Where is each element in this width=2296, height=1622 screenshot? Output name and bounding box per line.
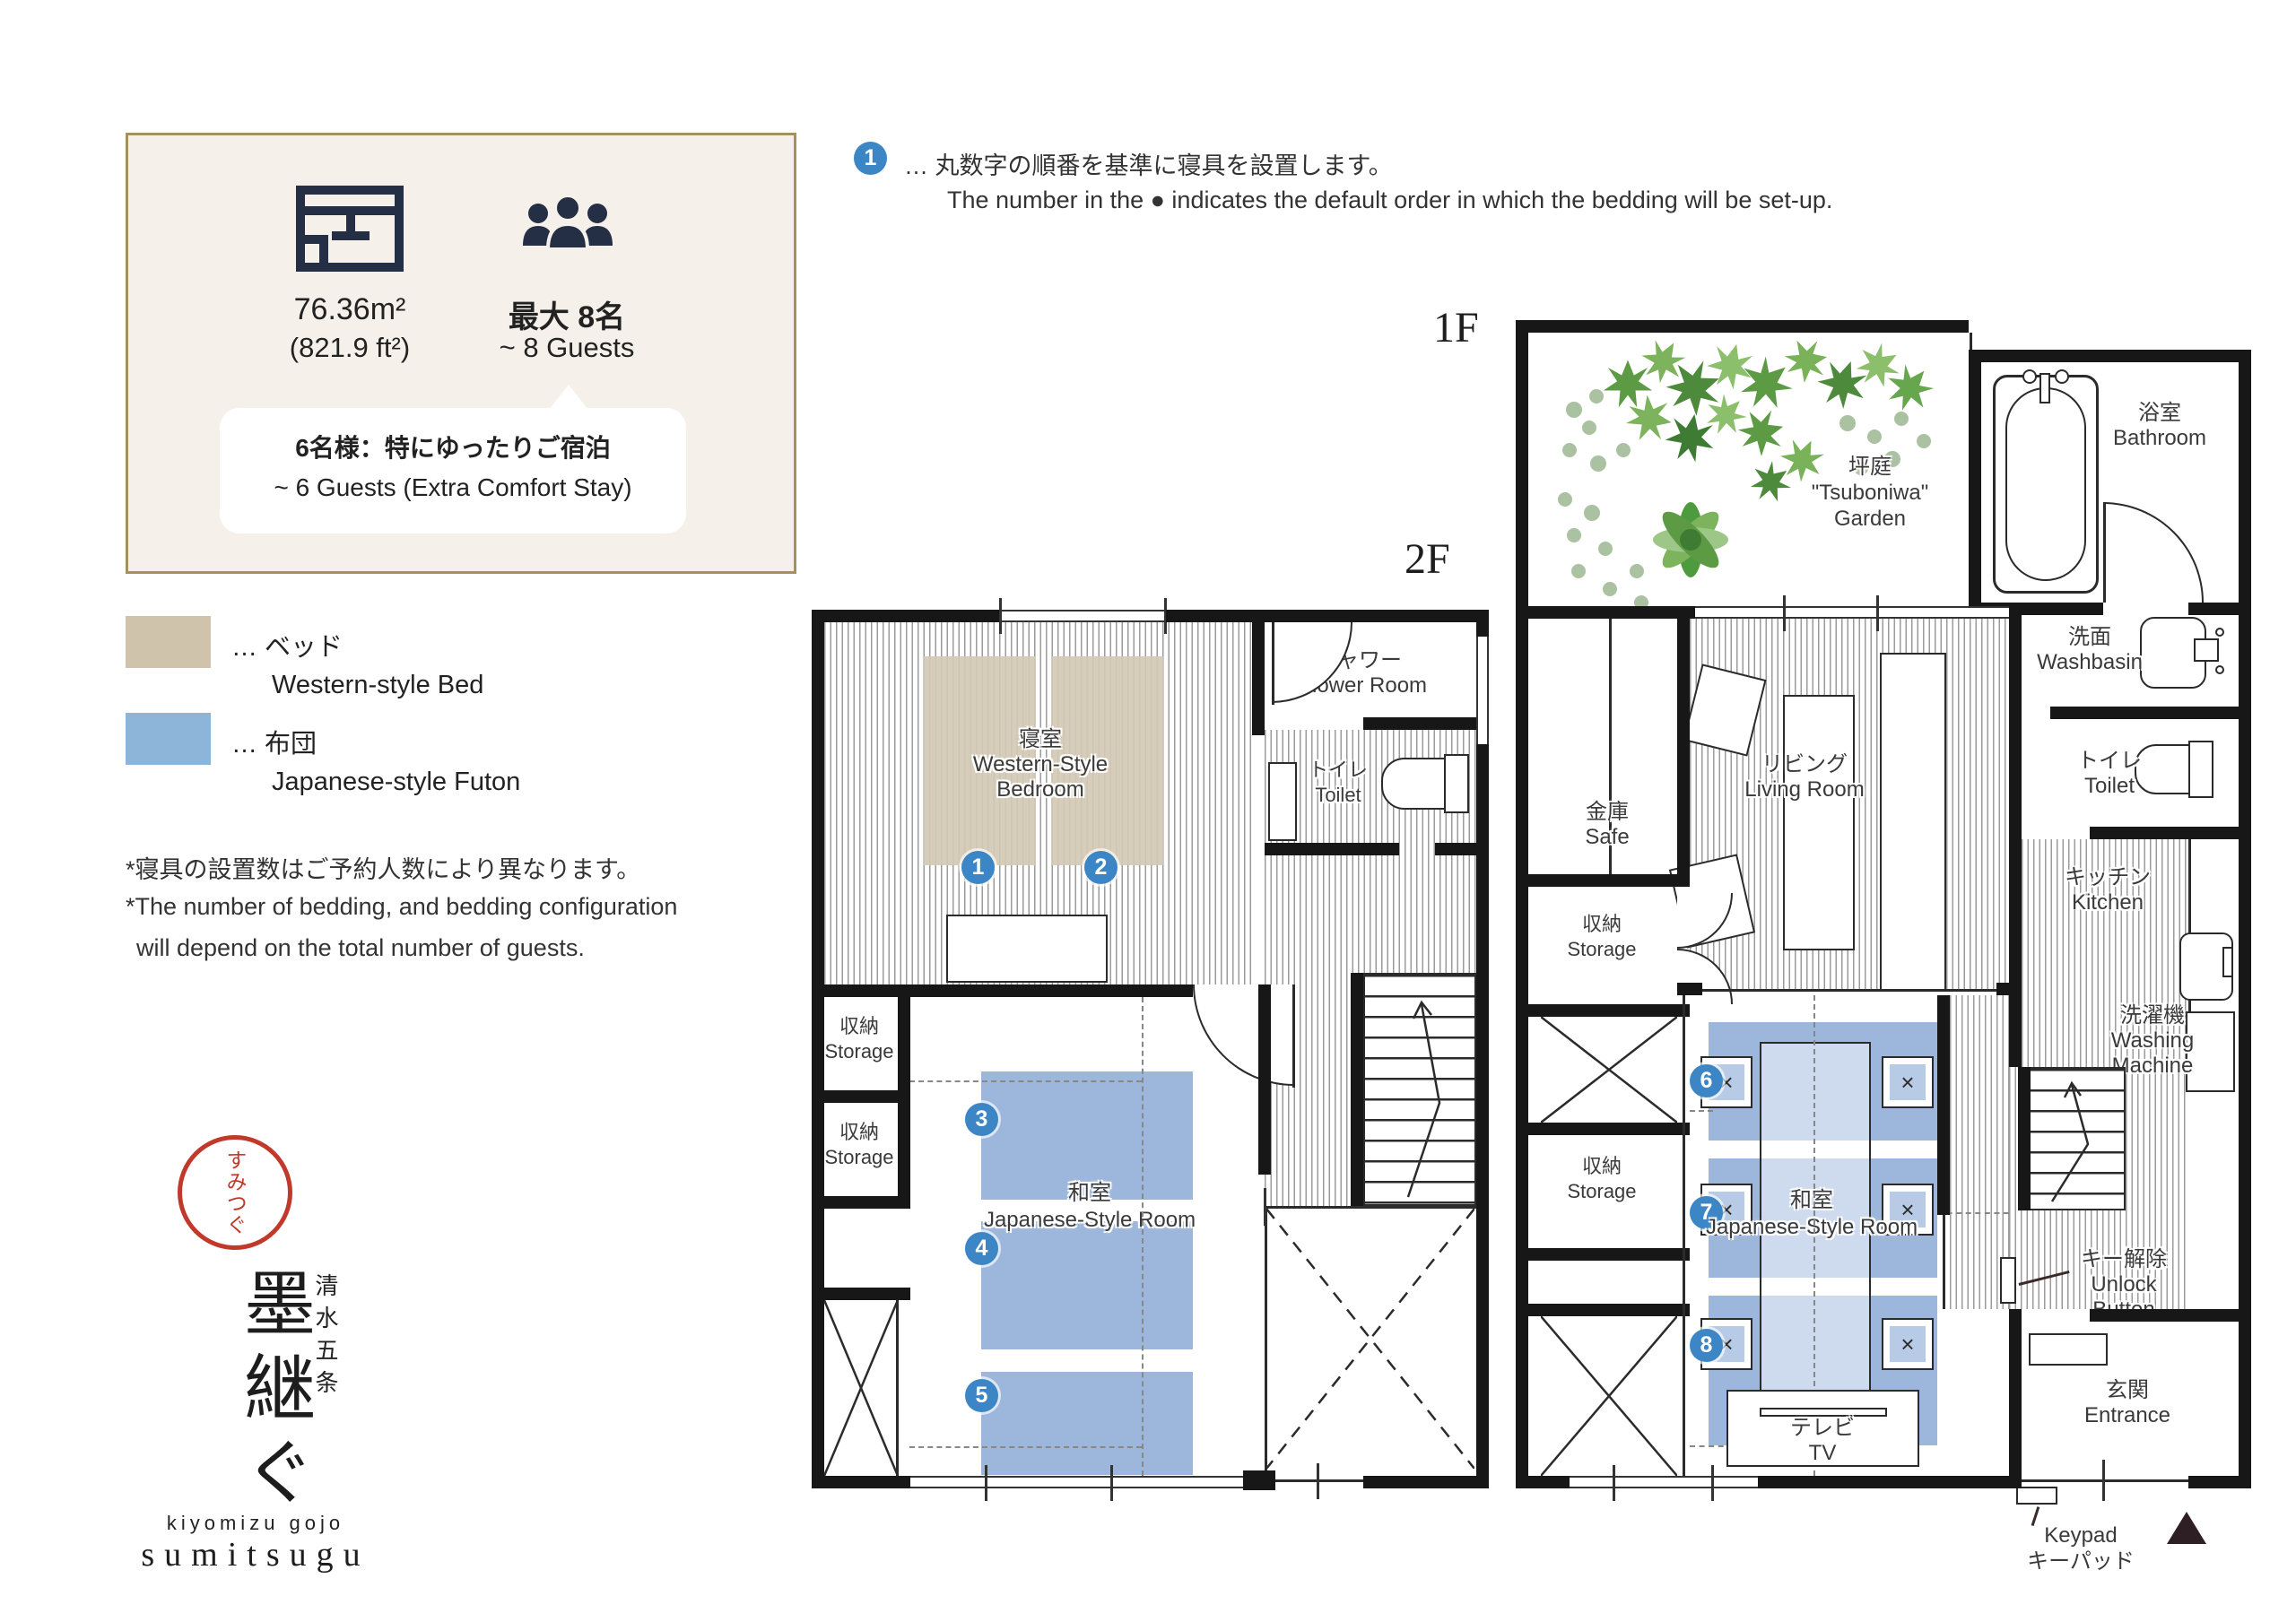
garden-label-jp: 坪庭 <box>1762 455 1978 479</box>
toilet-2f-bowl <box>1381 758 1448 810</box>
marker-8-number: 8 <box>1700 1332 1713 1358</box>
wall <box>1528 606 1695 619</box>
window <box>1695 606 2009 619</box>
tick <box>1613 1465 1615 1501</box>
tick <box>985 1465 987 1501</box>
marker-5-number: 5 <box>976 1383 988 1409</box>
garden-label-en1: "Tsuboniwa" <box>1762 481 1978 505</box>
laundry-label-en1: Washing <box>2081 1029 2224 1053</box>
wall <box>1758 1476 2009 1488</box>
toilet-2f-label-en: Toilet <box>1284 784 1392 807</box>
bedding-marker-4: 4 <box>965 1232 998 1265</box>
marker-2-number: 2 <box>1095 854 1108 880</box>
storage-1f-b-en: Storage <box>1530 1180 1674 1203</box>
wall <box>812 610 824 1488</box>
living-label-jp: リビング <box>1706 753 1903 776</box>
bedroom-label-en2: Bedroom <box>933 778 1148 802</box>
marker-3-number: 3 <box>976 1106 988 1132</box>
wall <box>898 1103 910 1196</box>
wall <box>2009 1309 2022 1488</box>
kitchen-label-en: Kitchen <box>2027 891 2188 915</box>
setup-note-badge-number: 1 <box>865 145 877 171</box>
bathroom-label-en: Bathroom <box>2079 427 2240 450</box>
bedding-marker-5: 5 <box>965 1379 998 1412</box>
legend-bed-en: Western-style Bed <box>272 671 483 700</box>
laundry-label-jp: 洗濯機 <box>2081 1004 2224 1028</box>
wall-thin <box>1690 989 2009 992</box>
wall <box>1476 610 1489 637</box>
bath-handle <box>2039 373 2050 403</box>
washitsu-2f-label-jp: 和室 <box>964 1182 1215 1205</box>
floor-chair: × <box>1882 1056 1934 1108</box>
area-alt-value: (821.9 ft²) <box>224 332 475 364</box>
wall <box>898 997 910 1103</box>
bathroom-door-arc <box>2103 502 2204 603</box>
wall <box>1528 1304 1690 1316</box>
wall <box>1677 983 1702 995</box>
storage-1f-b-jp: 収納 <box>1530 1155 1674 1178</box>
closet-x-1f-b <box>1541 1316 1677 1476</box>
wall <box>1351 973 1363 1206</box>
toilet-1f-label-jp: トイレ <box>2038 750 2181 773</box>
wall-thin <box>1275 1479 1363 1482</box>
wall-thin <box>896 1300 899 1476</box>
storage-1f-a-jp: 収納 <box>1530 913 1674 936</box>
bedroom-door-arc <box>1193 984 1294 1086</box>
keypad-label-jp: キーパッド <box>2000 1550 2161 1574</box>
shoe-cabinet <box>2029 1333 2108 1366</box>
wall <box>812 984 1193 997</box>
wall <box>1166 610 1489 622</box>
wall-thin <box>1943 1215 1945 1309</box>
tatami-line <box>909 1080 1142 1082</box>
marker-4-number: 4 <box>976 1236 988 1262</box>
bathroom-label-jp: 浴室 <box>2079 402 2240 425</box>
wall <box>2090 827 2251 839</box>
kitchen-label-jp: キッチン <box>2027 866 2188 889</box>
logo-seal-text: すみつぐ <box>220 1149 250 1236</box>
marker-6-number: 6 <box>1700 1068 1713 1094</box>
keypad-label-en: Keypad <box>2000 1524 2161 1548</box>
washitsu-2f-label-en: Japanese-Style Room <box>964 1209 1215 1232</box>
tv-label-en: TV <box>1724 1442 1921 1465</box>
floorplan-page: 76.36m² (821.9 ft²) 最大 8名 ~ 8 Guests 6名様… <box>0 0 2296 1622</box>
wall <box>1258 984 1271 1175</box>
area-value: 76.36m² <box>224 292 475 327</box>
safe-label-en: Safe <box>1535 826 1679 849</box>
tick <box>1110 1465 1113 1501</box>
toilet-1f-label-en: Toilet <box>2038 775 2181 798</box>
note-en-line1: *The number of bedding, and bedding conf… <box>126 893 677 921</box>
comfort-callout-jp: 6名様：特にゆったりご宿泊 <box>229 429 677 464</box>
garden-label-en2: Garden <box>1762 507 1978 531</box>
note-en-line2: will depend on the total number of guest… <box>136 934 585 962</box>
bedding-marker-8: 8 <box>1690 1329 1723 1362</box>
wall <box>1528 1248 1690 1261</box>
closet-2f <box>1268 762 1297 841</box>
note-jp: *寝具の設置数はご予約人数により異なります。 <box>126 850 640 885</box>
wall <box>2018 1067 2031 1210</box>
tick <box>2102 1460 2105 1501</box>
wall <box>812 610 1000 622</box>
tick <box>1711 1465 1714 1501</box>
keypad-box <box>2016 1487 2057 1505</box>
wall <box>1528 1004 1690 1017</box>
wall <box>812 1288 910 1300</box>
sofa-1 <box>1783 695 1855 950</box>
futon-5 <box>981 1372 1193 1475</box>
comfort-callout <box>220 408 686 533</box>
legend-futon-jp: … 布団 <box>231 723 317 760</box>
legend-bed-swatch <box>126 616 211 668</box>
sofa-2 <box>1880 653 1946 992</box>
wall <box>1528 874 1690 887</box>
logo-latin-small: kiyomizu gojo <box>135 1512 377 1535</box>
window <box>1476 637 1489 744</box>
bedroom-label-jp: 寝室 <box>933 728 1148 751</box>
wall <box>2188 1476 2251 1488</box>
tick <box>1876 595 1879 631</box>
window <box>1000 610 1166 622</box>
washitsu-1f-label-jp: 和室 <box>1686 1189 1937 1212</box>
wall <box>2009 603 2022 1067</box>
keypad-leader-line <box>2031 1506 2039 1526</box>
tv-label-jp: テレビ <box>1724 1417 1921 1440</box>
washbasin-knob <box>2215 665 2224 674</box>
stairs-1f-arrow-icon <box>2025 1072 2118 1205</box>
washbasin-tap <box>2194 638 2219 662</box>
washbasin-knob <box>2215 628 2224 637</box>
logo-seal: すみつぐ <box>178 1135 292 1250</box>
unlock-label-en1: Unlock <box>2061 1273 2187 1297</box>
tick <box>999 598 1002 634</box>
wall <box>1516 320 1969 333</box>
wall <box>1363 717 1476 730</box>
max-guests-jp: 最大 8名 <box>441 292 692 336</box>
setup-note-badge: 1 <box>854 142 887 175</box>
wall <box>2090 1309 2251 1322</box>
unlock-button <box>2000 1257 2016 1304</box>
entrance-label-en: Entrance <box>2056 1404 2199 1427</box>
tick <box>1317 1463 1319 1499</box>
stairs-2f-arrow-icon <box>1372 986 1471 1201</box>
living-label-en: Living Room <box>1706 778 1903 802</box>
toilet-2f-tank <box>1444 754 1469 813</box>
window <box>1570 1476 1758 1488</box>
comfort-callout-en: ~ 6 Guests (Extra Comfort Stay) <box>229 473 677 502</box>
legend-futon-swatch <box>126 713 211 765</box>
bath-faucet <box>2055 369 2069 384</box>
comfort-callout-tail <box>549 385 588 410</box>
floorplan-icon <box>294 184 405 273</box>
bedding-marker-3: 3 <box>965 1103 998 1136</box>
wall <box>1243 1470 1275 1490</box>
closet-x-1f-a <box>1541 1017 1677 1123</box>
wall <box>1937 995 1950 1215</box>
window <box>910 1476 1243 1488</box>
wall <box>1363 1476 1489 1488</box>
kitchen-tap <box>2222 947 2233 977</box>
legend-futon-en: Japanese-style Futon <box>272 768 520 797</box>
setup-note-en: The number in the ● indicates the defaul… <box>947 186 1832 214</box>
toilet-2f-label-jp: トイレ <box>1284 759 1392 782</box>
wall <box>1252 610 1265 735</box>
wall <box>1476 744 1489 1488</box>
max-guests-en: ~ 8 Guests <box>441 332 692 364</box>
floor-2f-label: 2F <box>1405 534 1450 584</box>
bedding-marker-1: 1 <box>961 851 995 884</box>
wall <box>2188 603 2239 615</box>
logo-main-vertical: 墨継ぐ <box>221 1266 325 1519</box>
wall <box>812 1196 910 1209</box>
storage-1f-a-en: Storage <box>1530 938 1674 961</box>
wall <box>1528 1123 1690 1135</box>
void-2f-x <box>1266 1209 1474 1469</box>
bedding-marker-2: 2 <box>1084 851 1118 884</box>
tick <box>1783 595 1786 631</box>
wall <box>812 1476 910 1488</box>
setup-note-jp: … 丸数字の順番を基準に寝具を設置します。 <box>904 146 1393 181</box>
tatami-line <box>909 1446 1142 1448</box>
futon-4 <box>981 1221 1193 1349</box>
wall <box>1969 350 1981 615</box>
entrance-label-jp: 玄関 <box>2056 1379 2199 1402</box>
closet-x-2f <box>824 1300 898 1476</box>
wall <box>1677 619 1690 883</box>
wall <box>1516 320 1528 1488</box>
bedroom-label-en1: Western-Style <box>933 753 1148 776</box>
chair-x-icon: × <box>1890 1064 1926 1100</box>
marker-1-number: 1 <box>972 854 985 880</box>
wall <box>1435 843 1476 855</box>
wall <box>1969 350 2251 362</box>
bedding-marker-6: 6 <box>1690 1064 1723 1097</box>
floor-chair: × <box>1882 1318 1934 1370</box>
bathtub-inner <box>2005 387 2086 581</box>
tatami-line <box>1142 997 1144 1476</box>
floor-1f-label: 1F <box>1433 303 1479 352</box>
bedroom-door-leaf <box>1292 984 1295 1088</box>
dresser <box>946 915 1108 983</box>
tick <box>1264 1188 1266 1226</box>
wall <box>2050 707 2251 719</box>
legend-bed-jp: … ベッド <box>231 626 343 664</box>
bath-faucet <box>2022 369 2037 384</box>
entrance-arrow-icon <box>2167 1512 2206 1544</box>
wall <box>1516 1476 1570 1488</box>
bathroom-door-leaf <box>2103 502 2106 603</box>
washbasin-label-jp: 洗面 <box>2009 626 2170 649</box>
tatami-line <box>1690 1110 1713 1112</box>
shower-door-leaf <box>1272 622 1274 705</box>
logo-latin-large: sumitsugu <box>108 1535 404 1574</box>
unlock-label-jp: キー解除 <box>2061 1248 2187 1271</box>
chair-x-icon: × <box>1890 1326 1926 1362</box>
wall <box>1265 843 1399 855</box>
entrance-door-line <box>2022 1479 2188 1482</box>
wall <box>812 1090 910 1103</box>
washitsu-1f-label-en: Japanese-Style Room <box>1686 1216 1937 1239</box>
guests-icon <box>516 190 620 264</box>
wall-thin <box>1683 995 1685 1476</box>
safe-label-jp: 金庫 <box>1535 801 1679 824</box>
toilet-1f-tank <box>2188 741 2213 798</box>
washbasin-label-en: Washbasin <box>2009 651 2170 674</box>
